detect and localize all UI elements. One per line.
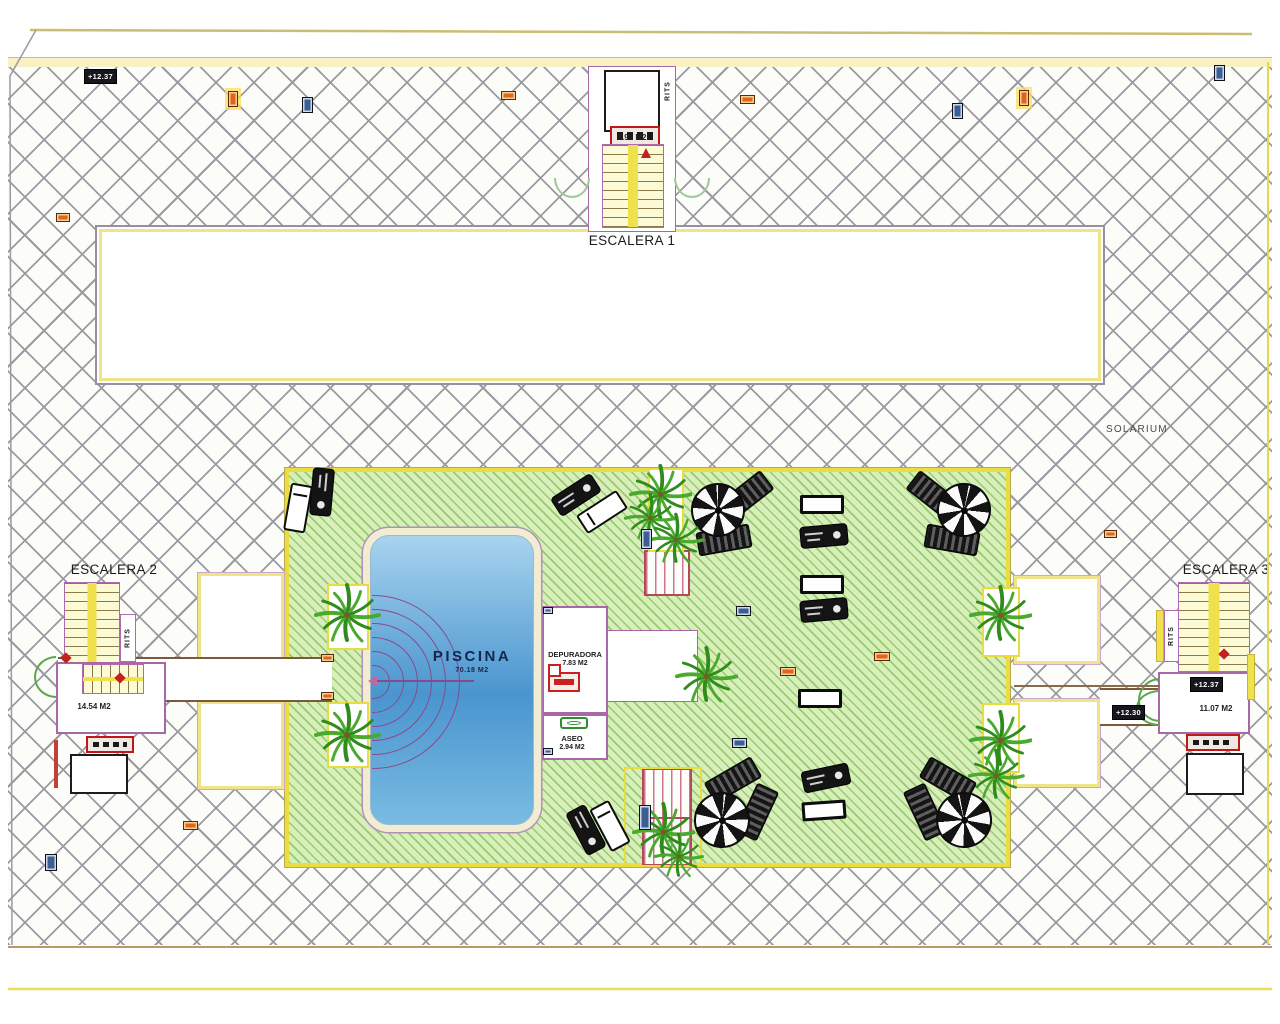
vent-marker-blue: [302, 97, 313, 113]
vent-marker-blue: [543, 748, 553, 755]
escalera2-lift-shaft: [70, 754, 128, 794]
escalera3-lift-shaft: [1186, 753, 1244, 795]
vent-marker-blue: [639, 805, 651, 830]
vent-marker-orange: [321, 654, 334, 662]
lift-car-icon: [1186, 734, 1240, 751]
escalera1-stair-flight: [602, 144, 664, 228]
vent-marker-orange: [780, 667, 796, 676]
vent-marker-orange: [321, 692, 334, 700]
vent-marker-orange: [874, 652, 890, 661]
vent-marker-blue: [641, 529, 652, 549]
vent-marker-blue: [45, 854, 57, 871]
escalera3-area-label: 11.07 M2: [1188, 704, 1244, 713]
elevation-badge: +12.37: [1190, 677, 1223, 692]
vent-marker-orange: [1019, 90, 1029, 106]
palm-tree-icon: [647, 511, 705, 569]
elevation-badge: +12.37: [84, 69, 117, 84]
vent-marker-orange: [501, 91, 516, 100]
palm-tree-icon: [967, 747, 1025, 805]
escalera3-stair-flight: [1178, 582, 1250, 672]
escalera3-title: ESCALERA 3: [1170, 562, 1280, 577]
escalera2-stair-flight: [64, 582, 120, 664]
vent-marker-orange: [56, 213, 70, 222]
building-void-band: [95, 225, 1105, 385]
vent-marker-blue: [1214, 65, 1225, 81]
rits-label: RITS: [1164, 610, 1179, 662]
escalera2-stair-flight: [82, 664, 144, 694]
palm-tree-icon: [313, 581, 381, 649]
vent-marker-orange: [228, 91, 238, 107]
duct-strip: [1247, 654, 1255, 700]
vent-marker-blue: [736, 606, 751, 616]
elevation-badge: +12.30: [1112, 705, 1145, 720]
palm-tree-icon: [313, 701, 381, 769]
vent-marker-blue: [543, 607, 553, 614]
pump-icon: [548, 672, 580, 692]
occupied-lounger-icon: [309, 467, 335, 517]
solarium-label: SOLARIUM: [1106, 424, 1168, 435]
deck-table-icon: [800, 575, 844, 594]
rits-label: RITS: [662, 72, 674, 110]
vent-marker-orange: [183, 821, 198, 830]
deck-table-icon: [801, 799, 846, 821]
depuradora-name: DEPURADORA: [543, 650, 607, 659]
deck-table-icon: [800, 495, 844, 514]
escalera2-area-label: 14.54 M2: [62, 702, 126, 711]
sink-icon: [560, 717, 588, 729]
palm-tree-icon: [968, 583, 1033, 648]
floor-plan-drawing: RITS 8.91 M2 ESCALERA 1 ESCALERA 2 RITS …: [0, 0, 1280, 1024]
aseo-area: 2.94 M2: [548, 744, 596, 751]
occupied-lounger-icon: [799, 523, 849, 549]
pool-lane-line: [374, 680, 474, 682]
vent-marker-blue: [952, 103, 963, 119]
lift-car-icon: [86, 736, 134, 753]
pool-step-arc: [372, 595, 460, 769]
stair-direction-arrow: [641, 148, 651, 158]
pool-name: PISCINA: [412, 648, 532, 665]
aseo-name: ASEO: [548, 734, 596, 743]
wall-marker: [54, 740, 58, 788]
pool-entry-arrow: [368, 676, 377, 686]
escalera1-title: ESCALERA 1: [578, 233, 686, 248]
escalera1-area-label: 8.91 M2: [590, 133, 674, 142]
escalera2-title: ESCALERA 2: [58, 562, 170, 577]
occupied-lounger-icon: [799, 597, 849, 623]
escalera1-lift-shaft: [604, 70, 660, 132]
skylight: [198, 701, 284, 789]
palm-tree-icon: [674, 644, 739, 709]
skylight: [198, 573, 284, 661]
pool-area: 70.18 M2: [412, 667, 532, 674]
rits-label: RITS: [120, 614, 136, 662]
vent-marker-orange: [1104, 530, 1117, 538]
duct-strip: [1156, 610, 1164, 662]
vent-marker-orange: [740, 95, 755, 104]
vent-marker-blue: [732, 738, 747, 748]
deck-table-icon: [798, 689, 842, 708]
palm-tree-icon: [653, 831, 704, 882]
